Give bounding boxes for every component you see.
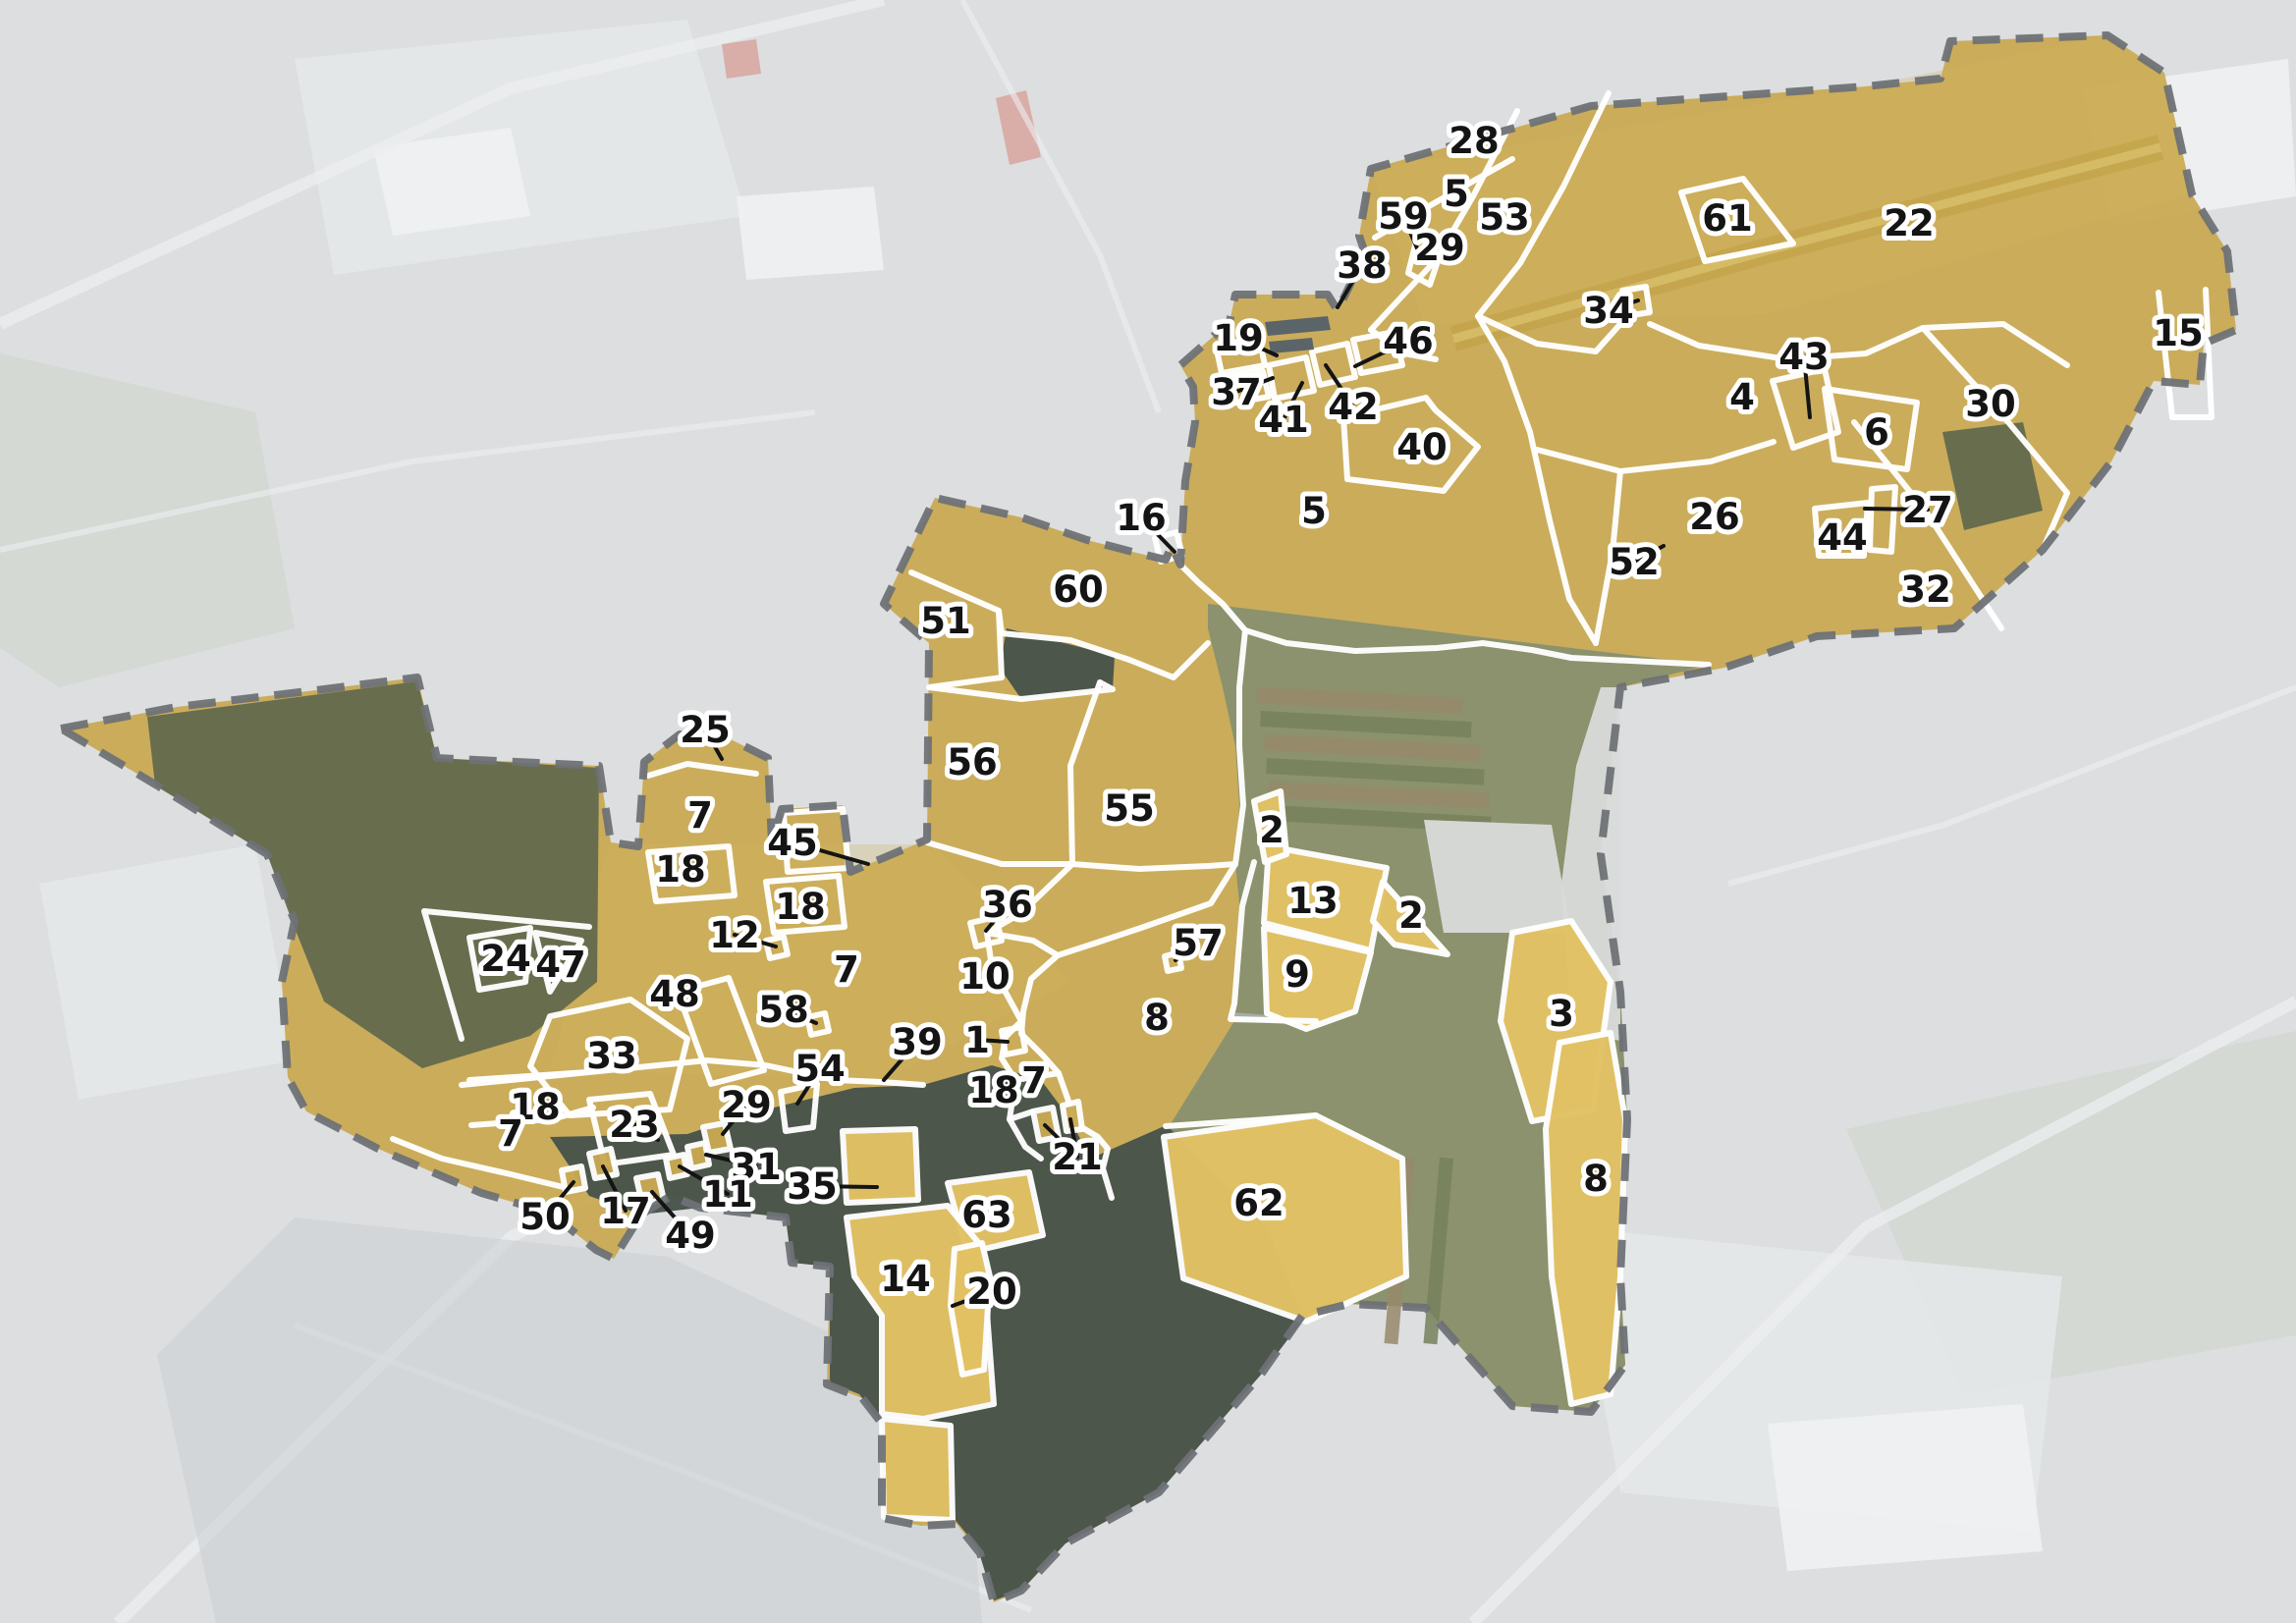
zone-number: 2 — [1398, 894, 1424, 937]
zone-number: 7 — [1021, 1059, 1047, 1102]
zone-number: 27 — [1902, 489, 1953, 531]
zone-number: 53 — [1479, 196, 1530, 239]
map-stage: Aerial orthophoto zoning map: numbered l… — [0, 0, 2296, 1623]
zone-number: 45 — [767, 822, 818, 864]
zone-label-18: 18 — [968, 1069, 1019, 1111]
zone-label-51: 51 — [920, 600, 971, 642]
zone-number: 47 — [535, 944, 586, 986]
zone-number: 32 — [1900, 568, 1951, 611]
zone-label-7: 7 — [834, 948, 859, 991]
zone-number: 40 — [1396, 426, 1448, 468]
zone-number: 60 — [1053, 568, 1104, 611]
zone-number: 7 — [687, 794, 713, 837]
parcel-50 — [562, 1166, 585, 1192]
city-block — [39, 844, 295, 1100]
zone-number: 12 — [709, 914, 760, 956]
zone-number: 21 — [1052, 1136, 1103, 1178]
zone-number: 57 — [1173, 922, 1224, 964]
zone-label-63: 63 — [961, 1194, 1012, 1236]
zone-label-13: 13 — [1287, 880, 1339, 922]
zone-number: 26 — [1689, 496, 1740, 538]
zoning-map: 2855359293861223415194637424143463040265… — [0, 0, 2296, 1623]
zone-label-28: 28 — [1449, 120, 1500, 162]
zone-number: 48 — [649, 973, 700, 1015]
zone-number: 50 — [519, 1196, 571, 1238]
zone-number: 33 — [586, 1035, 637, 1077]
zone-number: 62 — [1233, 1182, 1285, 1224]
zone-number: 20 — [966, 1271, 1017, 1313]
zone-label-48: 48 — [649, 973, 700, 1015]
zone-number: 15 — [2153, 312, 2204, 354]
zone-number: 18 — [655, 848, 706, 891]
zone-number: 52 — [1609, 541, 1660, 583]
zone-label-18: 18 — [655, 848, 706, 891]
zone-label-8: 8 — [1583, 1158, 1609, 1200]
zone-label-34: 34 — [1583, 290, 1638, 332]
zone-number: 6 — [1864, 411, 1889, 454]
industrial-blocks — [1424, 820, 1571, 933]
zone-label-23: 23 — [609, 1104, 660, 1146]
zone-number: 18 — [775, 886, 826, 928]
zone-label-5: 5 — [1444, 173, 1469, 215]
zone-number: 22 — [1884, 202, 1935, 244]
parcel-14-leg — [882, 1419, 953, 1520]
zone-label-62: 62 — [1233, 1182, 1285, 1224]
zone-number: 51 — [920, 600, 971, 642]
zone-number: 7 — [834, 948, 859, 991]
zone-number: 4 — [1729, 376, 1755, 418]
zone-label-32: 32 — [1900, 568, 1951, 611]
zone-number: 28 — [1449, 120, 1500, 162]
zone-number: 55 — [1104, 787, 1155, 830]
zone-label-2: 2 — [1259, 809, 1285, 851]
zone-number: 29 — [721, 1084, 772, 1126]
zone-number: 44 — [1817, 516, 1868, 559]
zone-number: 9 — [1285, 953, 1310, 996]
zone-number: 39 — [892, 1021, 943, 1063]
zone-number: 5 — [1444, 173, 1469, 215]
zone-label-30: 30 — [1965, 383, 2016, 425]
zone-number: 1 — [964, 1019, 990, 1061]
zone-number: 10 — [959, 955, 1011, 998]
zone-number: 30 — [1965, 383, 2016, 425]
zone-number: 11 — [702, 1173, 753, 1216]
zone-number: 3 — [1549, 993, 1574, 1035]
zone-number: 61 — [1702, 197, 1753, 240]
zone-label-14: 14 — [880, 1258, 931, 1300]
zone-number: 41 — [1258, 399, 1309, 441]
zone-number: 5 — [1301, 490, 1327, 532]
zone-label-53: 53 — [1479, 196, 1530, 239]
zone-number: 38 — [1337, 244, 1388, 287]
zone-label-8: 8 — [1144, 997, 1170, 1039]
zone-label-4: 4 — [1729, 376, 1755, 418]
zone-label-7: 7 — [498, 1112, 523, 1155]
zone-number: 56 — [947, 741, 998, 784]
zone-number: 2 — [1259, 809, 1285, 851]
zone-label-18: 18 — [775, 886, 826, 928]
zone-number: 43 — [1778, 336, 1830, 378]
zone-label-40: 40 — [1396, 426, 1448, 468]
zone-number: 8 — [1583, 1158, 1609, 1200]
zone-label-57: 57 — [1173, 922, 1224, 964]
zone-label-29: 29 — [1414, 227, 1465, 269]
zone-number: 24 — [480, 938, 531, 980]
zone-label-6: 6 — [1864, 411, 1889, 454]
zone-number: 42 — [1328, 386, 1379, 428]
parcel-35 — [843, 1129, 918, 1203]
zone-label-36: 36 — [982, 884, 1033, 931]
zone-label-56: 56 — [947, 741, 998, 784]
zone-label-52: 52 — [1609, 541, 1664, 583]
zone-number: 7 — [498, 1112, 523, 1155]
zone-number: 46 — [1383, 320, 1434, 362]
zone-number: 18 — [968, 1069, 1019, 1111]
zone-number: 54 — [794, 1048, 846, 1090]
zone-number: 35 — [787, 1165, 838, 1208]
zone-label-7: 7 — [1021, 1059, 1047, 1102]
zone-number: 23 — [609, 1104, 660, 1146]
zone-number: 16 — [1116, 497, 1167, 539]
zone-number: 25 — [680, 709, 731, 751]
parcel-17 — [589, 1149, 617, 1178]
zone-label-55: 55 — [1104, 787, 1155, 830]
zone-number: 34 — [1583, 290, 1634, 332]
zone-label-7: 7 — [687, 794, 713, 837]
zone-label-2: 2 — [1398, 894, 1424, 937]
zone-label-58: 58 — [758, 989, 816, 1031]
zone-label-9: 9 — [1285, 953, 1310, 996]
zone-number: 36 — [982, 884, 1033, 926]
zone-label-15: 15 — [2153, 312, 2204, 354]
zone-label-22: 22 — [1884, 202, 1935, 244]
zone-number: 49 — [665, 1215, 716, 1257]
zone-number: 58 — [758, 989, 809, 1031]
zone-label-61: 61 — [1702, 197, 1753, 240]
zone-label-5: 5 — [1301, 490, 1327, 532]
city-warehouse-cluster — [1768, 1404, 2043, 1571]
zone-label-3: 3 — [1549, 993, 1574, 1035]
zone-number: 37 — [1211, 371, 1262, 413]
zone-label-26: 26 — [1689, 496, 1740, 538]
zone-label-24: 24 — [480, 938, 531, 980]
zone-number: 13 — [1287, 880, 1339, 922]
zone-number: 29 — [1414, 227, 1465, 269]
zone-label-10: 10 — [959, 955, 1011, 998]
zone-label-44: 44 — [1817, 516, 1868, 559]
zone-label-47: 47 — [535, 944, 586, 986]
zone-label-60: 60 — [1053, 568, 1104, 611]
city-warehouse-cluster — [737, 187, 884, 280]
zone-number: 14 — [880, 1258, 931, 1300]
zone-number: 17 — [600, 1190, 651, 1232]
zone-number: 63 — [961, 1194, 1012, 1236]
city-red-roofs — [722, 39, 761, 79]
zone-label-33: 33 — [586, 1035, 637, 1077]
parcel-11 — [666, 1155, 687, 1178]
zone-number: 19 — [1213, 317, 1264, 359]
zone-number: 8 — [1144, 997, 1170, 1039]
